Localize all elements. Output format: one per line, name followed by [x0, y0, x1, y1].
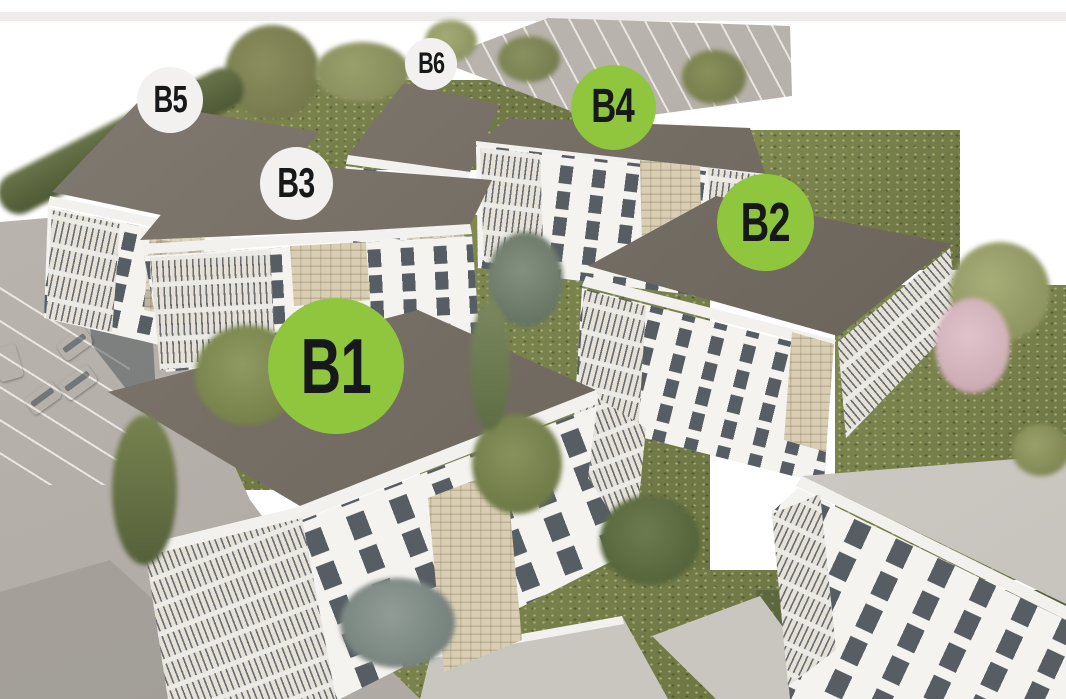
- blossom-tree: [935, 298, 1010, 393]
- tree: [472, 414, 562, 514]
- tree: [340, 578, 455, 668]
- bush: [1012, 424, 1066, 476]
- hedge-mid: [470, 300, 510, 430]
- building-badge-b3[interactable]: B3: [260, 147, 333, 220]
- building-badge-b6[interactable]: B6: [405, 38, 457, 90]
- bushes: [600, 495, 700, 585]
- building-badge-b4[interactable]: B4: [571, 65, 656, 150]
- siteplan-3d-view: B1 B2 B3 B4 B5 B6: [0, 0, 1066, 699]
- badge-label: B1: [301, 327, 371, 405]
- badge-label: B4: [592, 83, 635, 131]
- badge-label: B6: [418, 49, 444, 79]
- badge-label: B3: [277, 162, 314, 204]
- building-badge-b1[interactable]: B1: [268, 298, 404, 434]
- building-badge-b2[interactable]: B2: [717, 174, 814, 271]
- building-badge-b5[interactable]: B5: [137, 67, 203, 133]
- badge-label: B5: [153, 81, 187, 119]
- hedge-left: [112, 415, 177, 565]
- badge-label: B2: [740, 195, 789, 250]
